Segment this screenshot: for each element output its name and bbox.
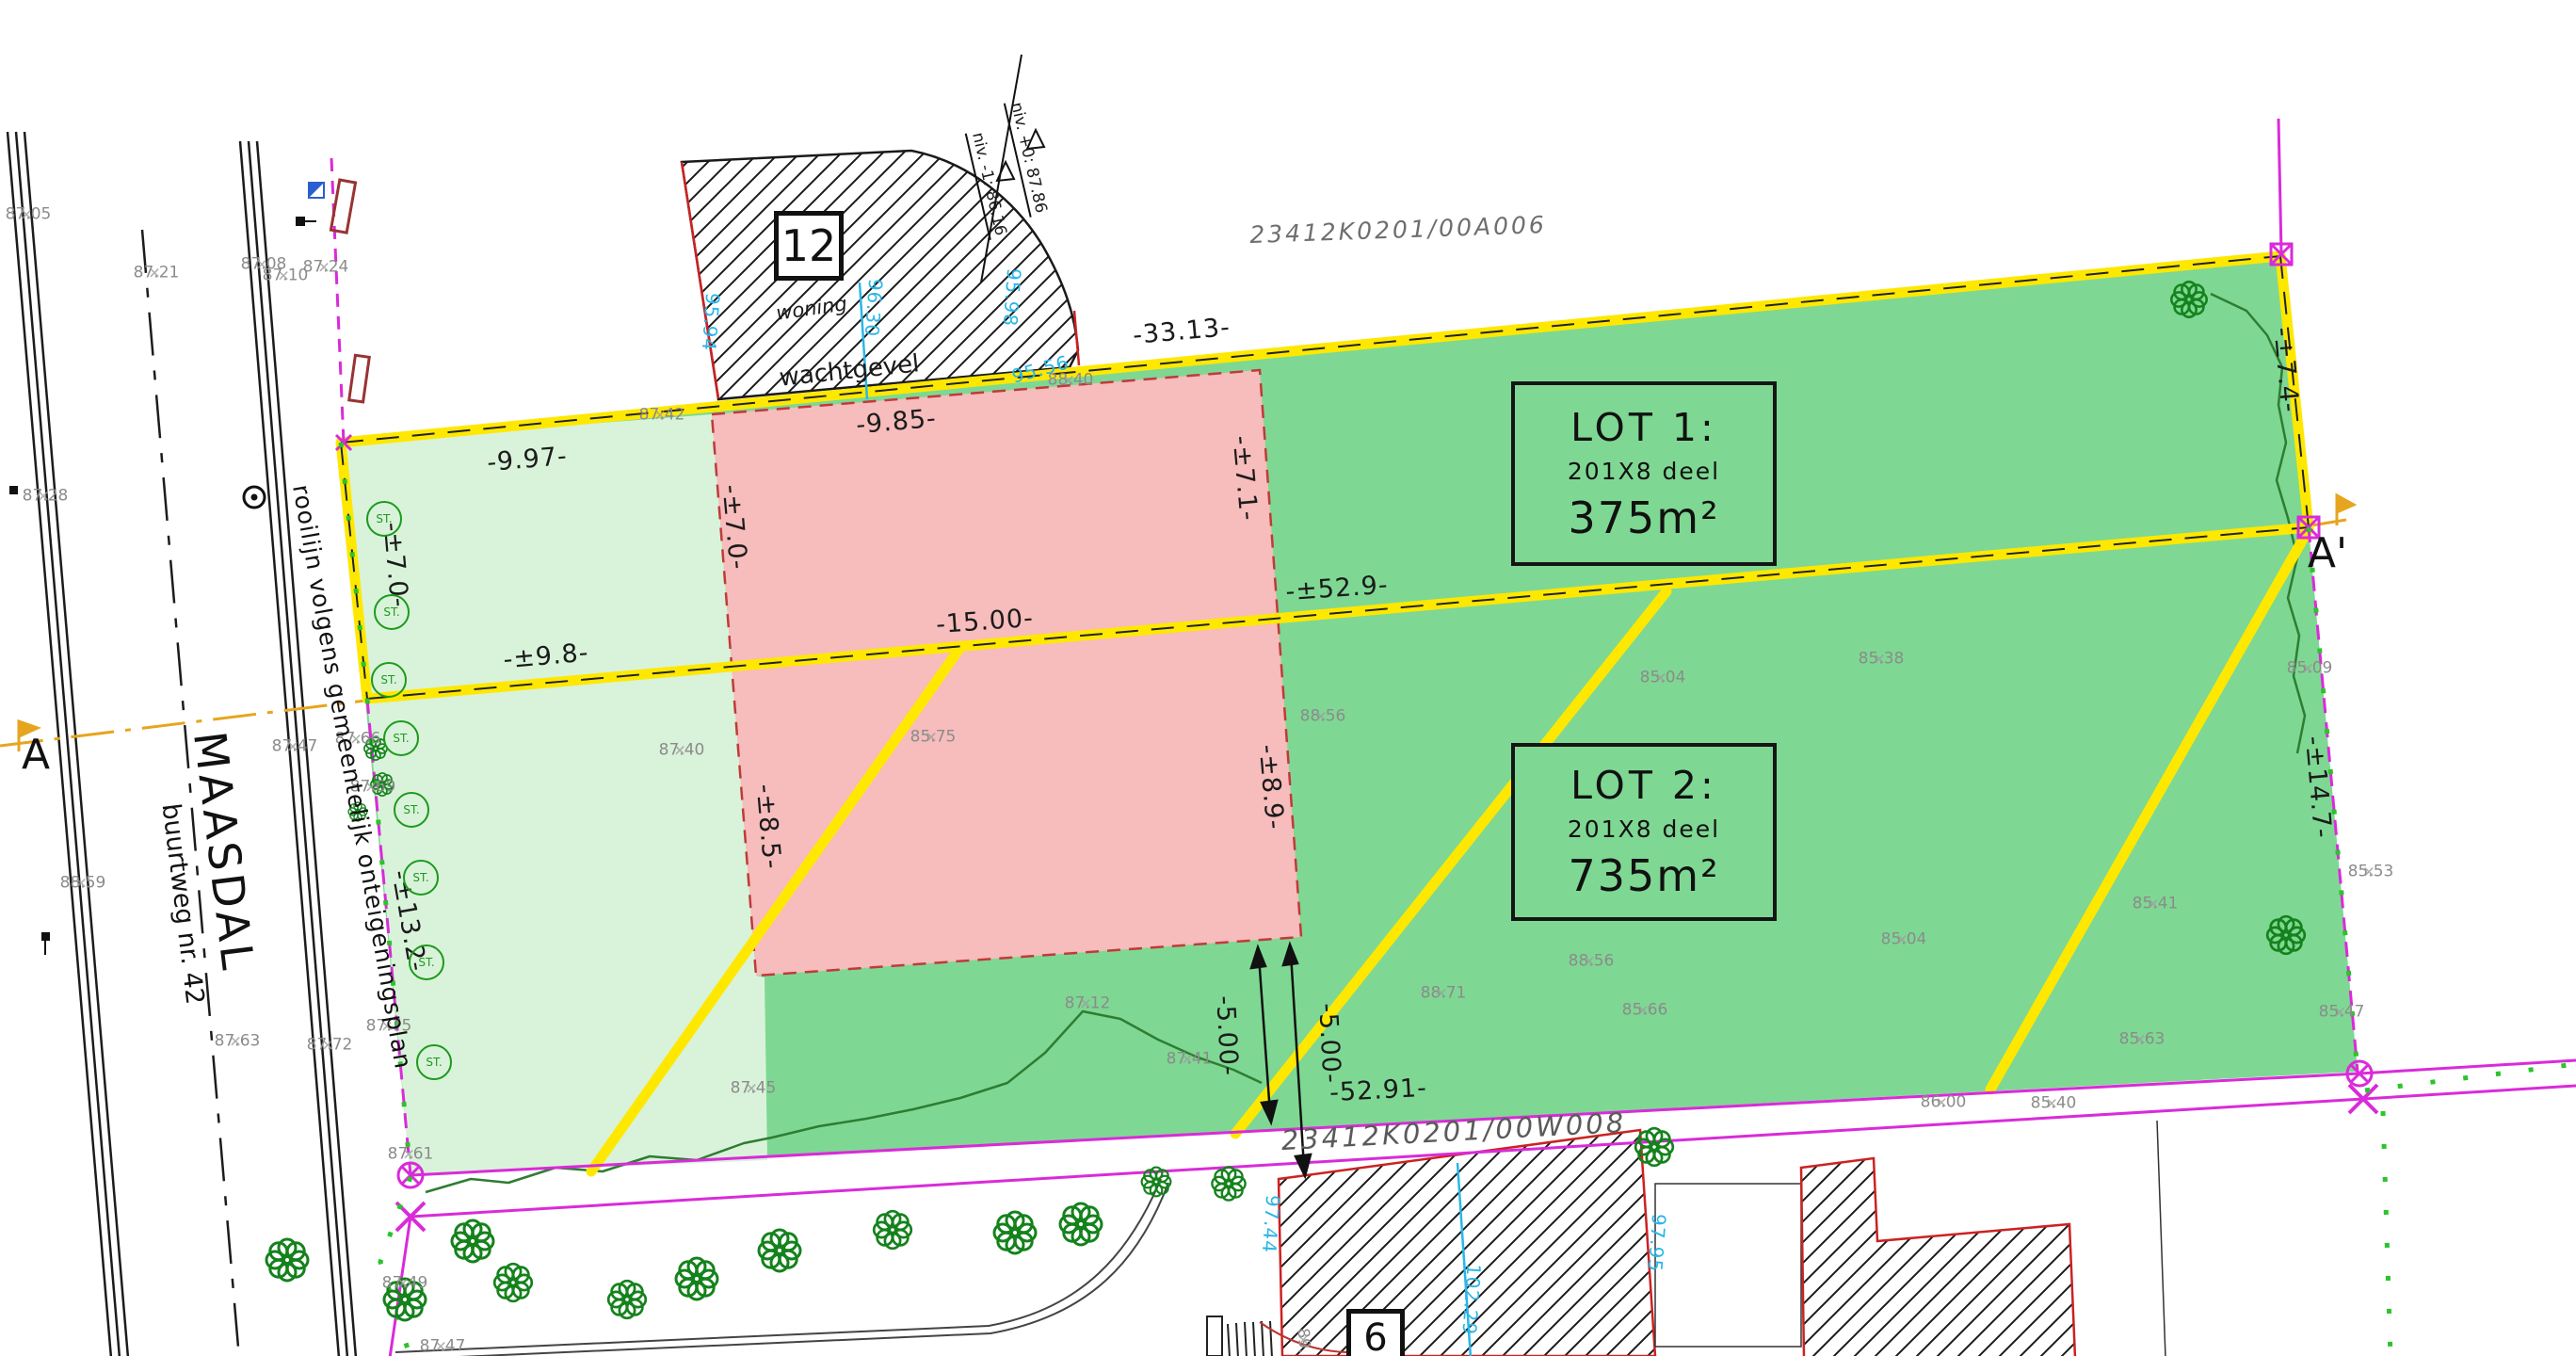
- level-height-label: 96.30: [862, 278, 885, 338]
- level-note-0: niv. +0: 87.86: [1004, 99, 1049, 217]
- spot-height-label: 85.09: [2287, 661, 2333, 677]
- spot-height-label: 87.61: [388, 1147, 434, 1163]
- cadastral-ref-bottom: 23412K0201/00W008: [1280, 1109, 1627, 1154]
- spot-height-label: 85.04: [1881, 932, 1927, 948]
- tree-stump-marker: ST.: [374, 594, 410, 630]
- spot-height-label: 85.41: [2133, 896, 2179, 912]
- spot-height-label: 85.47: [2319, 1005, 2365, 1021]
- level-height-label: 97.44: [1260, 1194, 1282, 1254]
- spot-height-label: 85.53: [2348, 864, 2394, 880]
- section-label-a: A: [22, 734, 50, 776]
- spot-height-label: 87.49: [382, 1276, 428, 1292]
- spot-height-label: 88.59: [60, 876, 106, 892]
- house-label-wachtgevel: wachtgevel: [778, 351, 920, 390]
- spot-height-label: 86.00: [1921, 1095, 1967, 1111]
- level-note-minus1: niv. -1: 86.16: [965, 129, 1009, 240]
- dim-15-00: -15.00-: [935, 605, 1034, 638]
- dim-8-9: -±8.9-: [1255, 743, 1288, 831]
- dim-9-85: -9.85-: [855, 406, 938, 438]
- spot-height-label: 87.28: [23, 489, 69, 505]
- spot-height-label: 87.10: [263, 268, 309, 284]
- level-height-label: 97.95: [1646, 1213, 1668, 1273]
- cadastral-plan-page: LOT 1: 201X8 deel 375m² LOT 2: 201X8 dee…: [0, 0, 2576, 1356]
- spot-height-label: 87.42: [639, 408, 685, 424]
- dim-7-1: -±7.1-: [1229, 434, 1262, 522]
- dim-9-8: -±9.8-: [502, 640, 589, 673]
- dim-5-00-b: -5.00-: [1314, 1003, 1344, 1085]
- spot-height-label: 85.04: [1640, 670, 1686, 686]
- spot-height-label: 87.72: [307, 1038, 353, 1054]
- spot-height-label: 85.40: [2031, 1096, 2077, 1112]
- spot-height-label: 87.63: [215, 1034, 261, 1050]
- spot-height-label: 87.41: [1167, 1052, 1213, 1068]
- spot-height-label: 85.66: [1622, 1003, 1668, 1019]
- dim-14-7: -±14.7-: [2301, 734, 2335, 839]
- spot-height-label: 87.45: [731, 1081, 777, 1097]
- level-height-label: 102.29: [1459, 1263, 1483, 1335]
- dim-7-4: -±7.4-: [2270, 326, 2303, 413]
- cadastral-ref-top: 23412K0201/00A006: [1249, 213, 1547, 247]
- house-label-woning: woning: [775, 294, 848, 323]
- spot-height-label: 87.47: [272, 739, 318, 755]
- spot-height-label: 89.: [1294, 1328, 1312, 1354]
- dim-52-9: -±52.9-: [1285, 573, 1390, 605]
- section-label-a-prime: A': [2308, 533, 2347, 574]
- dim-5-00-a: -5.00-: [1212, 995, 1241, 1077]
- spot-height-label: 87.40: [659, 743, 705, 759]
- level-height-label: 95.94: [700, 292, 722, 352]
- spot-height-label: 85.38: [1859, 652, 1905, 668]
- dim-33-13: -33.13-: [1132, 315, 1232, 348]
- dim-7-0-pink: -±7.0-: [718, 483, 751, 571]
- tree-stump-marker: ST.: [409, 944, 444, 980]
- spot-height-label: 88.71: [1421, 986, 1467, 1002]
- level-height-label: 95.98: [1001, 267, 1023, 328]
- spot-height-label: 87.12: [1065, 996, 1111, 1012]
- tree-stump-marker: ST.: [383, 720, 419, 756]
- spot-height-label: 85.63: [2119, 1032, 2165, 1048]
- spot-height-label: 87.21: [134, 266, 180, 282]
- labels-layer: -33.13--9.97--9.85--±9.8--15.00--±52.9--…: [0, 0, 2576, 1356]
- tree-stump-marker: ST.: [371, 662, 407, 698]
- spot-height-label: 88.56: [1569, 954, 1615, 970]
- dim-8-5: -±8.5-: [752, 783, 785, 870]
- tree-stump-marker: ST.: [394, 792, 429, 828]
- tree-stump-marker: ST.: [403, 860, 439, 896]
- dim-9-97: -9.97-: [486, 444, 569, 476]
- spot-height-label: 85.75: [910, 730, 957, 746]
- tree-stump-marker: ST.: [416, 1044, 452, 1080]
- tree-stump-marker: ST.: [366, 501, 402, 537]
- spot-height-label: 88.56: [1300, 709, 1346, 725]
- spot-height-label: 87.05: [6, 207, 52, 223]
- spot-height-label: 87.47: [420, 1339, 466, 1355]
- spot-height-label: 87.24: [303, 260, 349, 276]
